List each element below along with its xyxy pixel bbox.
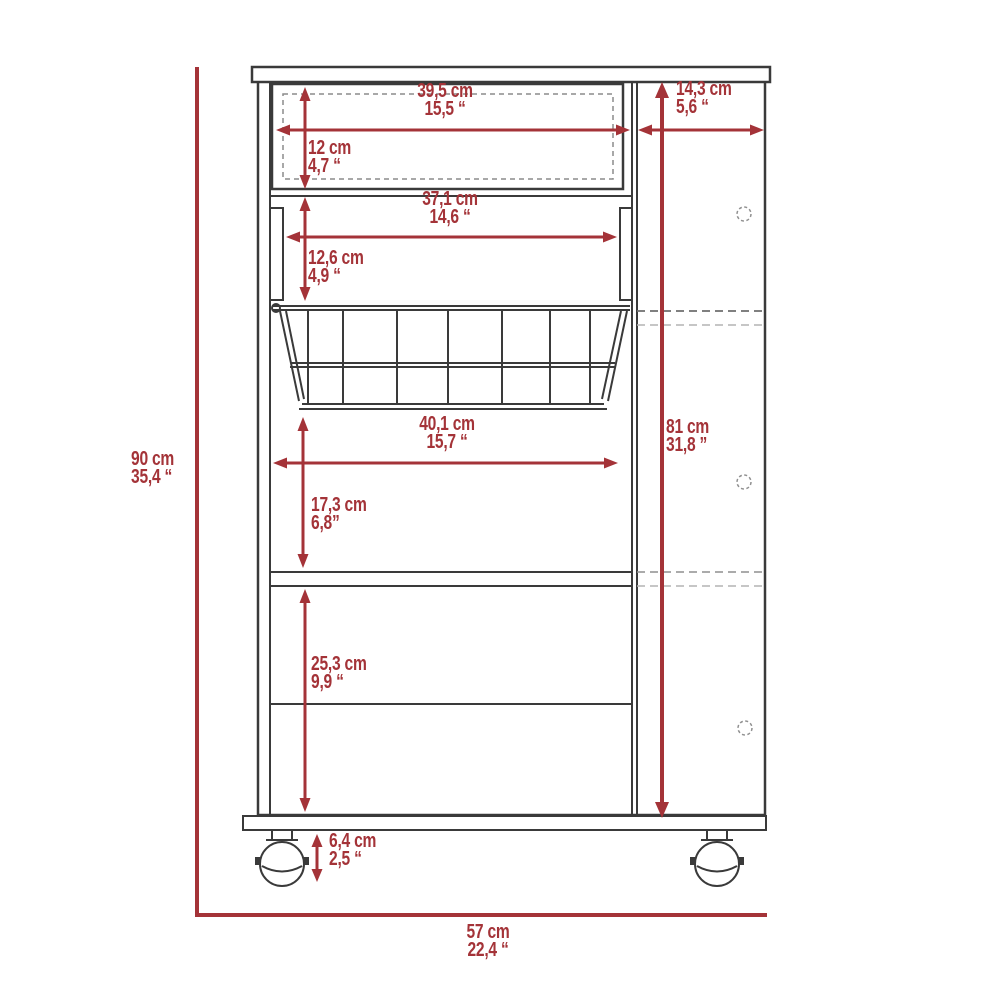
- imperial-value: 6,8”: [311, 515, 367, 533]
- arrowhead: [286, 232, 300, 243]
- right-bracket: [620, 208, 632, 300]
- basket-wires: [308, 311, 590, 405]
- arrowhead: [604, 458, 618, 469]
- cam-hole-top: [737, 207, 751, 221]
- dimension-label-basket-opening-width: 37,1 cm 14,6 “: [395, 191, 504, 226]
- arrowhead: [300, 197, 311, 211]
- arrowhead: [300, 175, 311, 189]
- cam-holes: [737, 207, 752, 735]
- arrowhead: [298, 554, 309, 568]
- base-board: [243, 816, 766, 830]
- arrowhead: [750, 125, 764, 136]
- arrowhead: [312, 834, 323, 847]
- caster-pin-l: [255, 857, 261, 865]
- imperial-value: 15,5 “: [390, 101, 499, 119]
- arrowhead: [300, 589, 311, 603]
- caster-pin-r: [738, 857, 744, 865]
- dimension-label-overall-width: 57 cm 22,4 “: [433, 924, 542, 959]
- arrowhead: [655, 82, 669, 98]
- arrowhead: [276, 125, 290, 136]
- arrowhead: [273, 458, 287, 469]
- cam-hole-middle: [737, 475, 751, 489]
- caster-pin-l: [690, 857, 696, 865]
- dimension-label-middle-section-height: 17,3 cm 6,8”: [311, 497, 367, 532]
- dimension-label-top-drawer-height: 12 cm 4,7 “: [308, 140, 351, 175]
- dimension-label-overall-height: 90 cm 35,4 “: [131, 451, 174, 486]
- caster-left: [255, 830, 309, 886]
- imperial-value: 35,4 “: [131, 469, 174, 487]
- imperial-value: 14,6 “: [395, 209, 504, 227]
- imperial-value: 15,7 “: [392, 434, 501, 452]
- caster-housing-edge: [262, 866, 302, 872]
- caster-housing-edge: [697, 866, 737, 872]
- arrowhead: [300, 798, 311, 812]
- diagram-drawing: [0, 0, 1000, 1000]
- caster-pin-r: [303, 857, 309, 865]
- dimension-label-caster-height: 6,4 cm 2,5 “: [329, 833, 376, 868]
- imperial-value: 31,8 ”: [666, 437, 709, 455]
- left-bracket: [271, 208, 283, 300]
- arrowhead: [638, 125, 652, 136]
- cam-hole-bottom: [738, 721, 752, 735]
- arrowhead: [298, 417, 309, 431]
- dimension-label-lower-section-height: 25,3 cm 9,9 “: [311, 656, 367, 691]
- imperial-value: 2,5 “: [329, 851, 376, 869]
- imperial-value: 9,9 “: [311, 674, 367, 692]
- imperial-value: 22,4 “: [433, 942, 542, 960]
- dimension-diagram: 39,5 cm 15,5 “ 12 cm 4,7 “ 14,3 cm 5,6 “…: [0, 0, 1000, 1000]
- dimension-label-interior-side-height: 81 cm 31,8 ”: [666, 419, 709, 454]
- arrowhead: [312, 869, 323, 882]
- dimension-label-right-panel-width: 14,3 cm 5,6 “: [676, 81, 732, 116]
- caster-right: [690, 830, 744, 886]
- wire-basket: [272, 304, 630, 409]
- dimension-label-middle-section-width: 40,1 cm 15,7 “: [392, 416, 501, 451]
- arrowhead: [603, 232, 617, 243]
- imperial-value: 4,7 “: [308, 158, 351, 176]
- imperial-value: 5,6 “: [676, 99, 732, 117]
- arrowhead: [300, 287, 311, 301]
- dimension-label-basket-opening-height: 12,6 cm 4,9 “: [308, 250, 364, 285]
- caster-ball: [695, 842, 739, 886]
- caster-ball: [260, 842, 304, 886]
- dimension-label-top-drawer-width: 39,5 cm 15,5 “: [390, 83, 499, 118]
- imperial-value: 4,9 “: [308, 268, 364, 286]
